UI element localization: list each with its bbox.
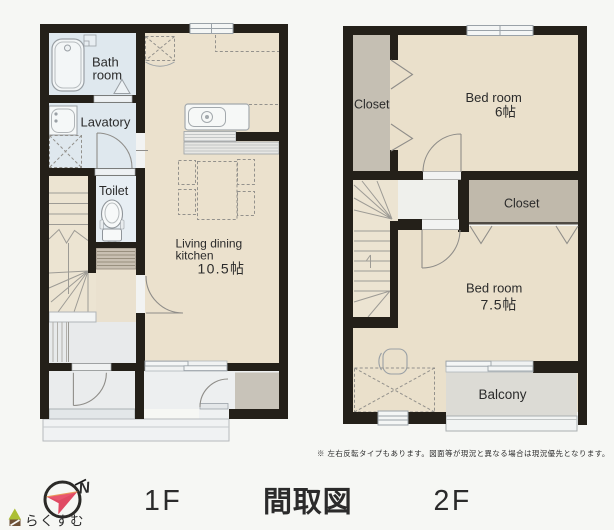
svg-text:6帖: 6帖 — [495, 105, 516, 120]
svg-text:Lavatory: Lavatory — [81, 115, 131, 130]
svg-text:Balcony: Balcony — [479, 387, 527, 402]
svg-text:Bed room: Bed room — [466, 281, 522, 296]
svg-text:らくすむ: らくすむ — [25, 514, 85, 529]
svg-text:2F: 2F — [434, 485, 472, 517]
svg-text:間取図: 間取図 — [263, 487, 352, 519]
svg-text:1F: 1F — [144, 485, 182, 517]
svg-text:room: room — [93, 68, 123, 83]
svg-text:10.5帖: 10.5帖 — [198, 261, 246, 277]
svg-text:Toilet: Toilet — [99, 184, 129, 198]
svg-text:Closet: Closet — [504, 197, 540, 211]
svg-text:7.5帖: 7.5帖 — [481, 297, 518, 313]
svg-text:※ 左右反転タイプもあります。図面等が現況と異なる場合は現況: ※ 左右反転タイプもあります。図面等が現況と異なる場合は現況優先となります。 — [317, 449, 610, 458]
svg-text:Bed room: Bed room — [466, 90, 522, 105]
svg-text:Closet: Closet — [354, 98, 390, 112]
